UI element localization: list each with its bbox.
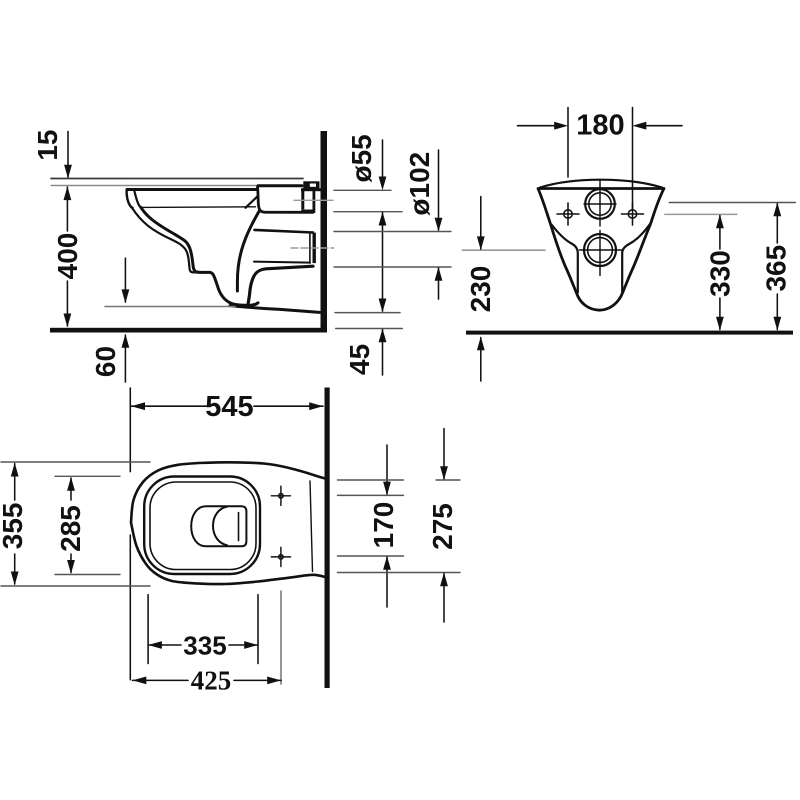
svg-text:230: 230: [465, 266, 496, 313]
svg-text:425: 425: [191, 666, 232, 696]
svg-text:365: 365: [760, 245, 791, 292]
svg-text:335: 335: [183, 631, 226, 661]
svg-text:45: 45: [344, 344, 375, 375]
svg-text:285: 285: [55, 505, 86, 552]
svg-text:545: 545: [205, 391, 253, 423]
svg-text:355: 355: [0, 503, 28, 550]
svg-text:ø102: ø102: [404, 152, 435, 216]
svg-text:15: 15: [32, 130, 63, 161]
svg-text:400: 400: [52, 233, 83, 280]
svg-text:275: 275: [427, 503, 458, 550]
svg-text:330: 330: [704, 250, 735, 297]
svg-text:60: 60: [90, 346, 121, 377]
svg-text:170: 170: [368, 502, 399, 549]
svg-text:180: 180: [576, 110, 624, 142]
svg-text:ø55: ø55: [346, 134, 377, 182]
